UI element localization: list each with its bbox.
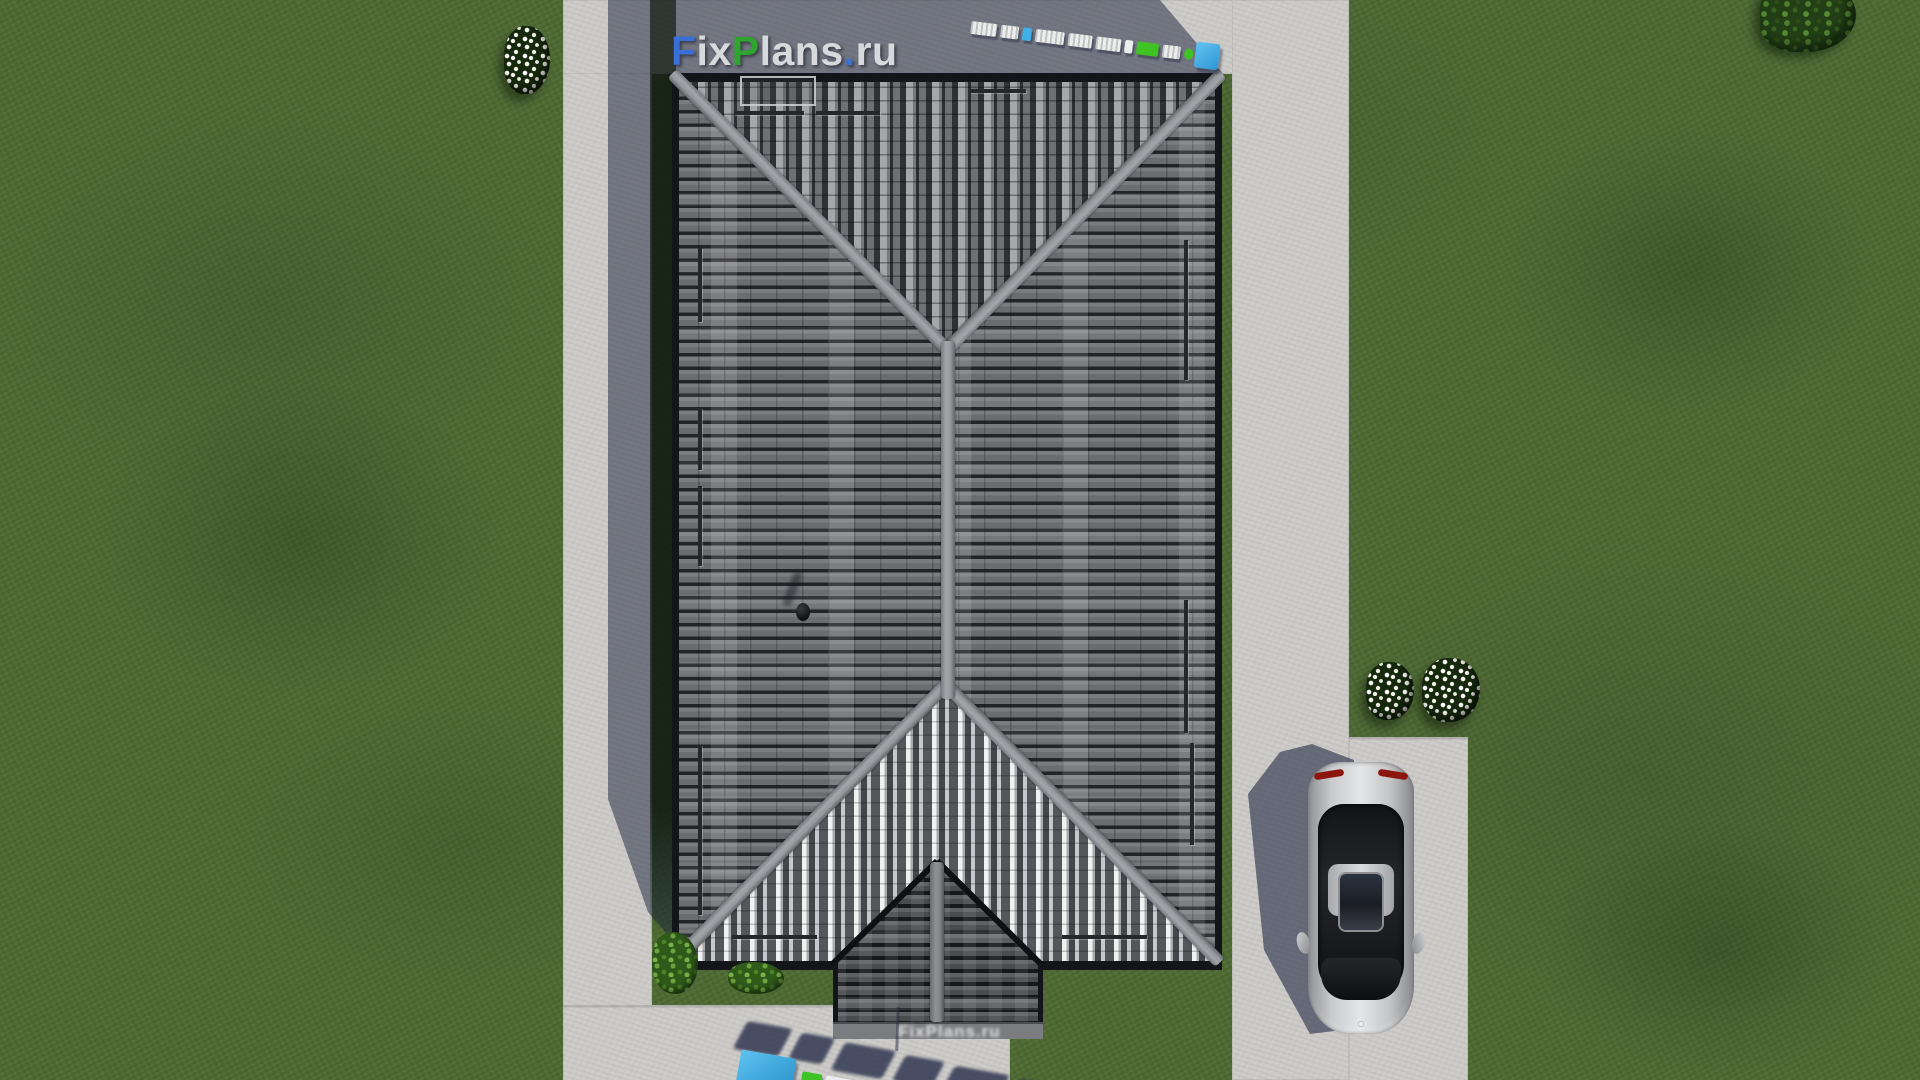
logo-block	[824, 1075, 856, 1080]
hood-emblem	[1358, 1021, 1364, 1027]
watermark-fixplans: FixPlans.ru	[671, 28, 898, 75]
car	[1308, 762, 1414, 1034]
snow-guard	[1062, 935, 1147, 939]
snow-guard	[1184, 240, 1188, 380]
shrub	[728, 962, 784, 994]
logo-block	[1035, 28, 1065, 44]
porch-roof	[833, 856, 1043, 1037]
watermark-smudge: FixPlans.ru	[898, 1022, 1001, 1042]
logo-cube-blue	[1193, 41, 1220, 70]
logo-block	[970, 20, 997, 36]
lawn-shade-patch	[1500, 120, 1880, 420]
logo-block-blue	[1021, 27, 1032, 41]
logo-block	[1096, 36, 1122, 52]
porch-eave-side	[833, 963, 838, 1023]
car-sunroof	[1340, 874, 1382, 930]
porch-ridge	[930, 862, 944, 1022]
eave-left	[672, 73, 679, 970]
logo-block	[1068, 32, 1094, 48]
logo-dot-green	[1184, 48, 1194, 60]
watermark-segment: F	[671, 28, 697, 74]
snow-guard	[816, 111, 880, 115]
roof-vent	[796, 603, 810, 621]
main-ridge	[941, 341, 955, 699]
snow-guard	[732, 935, 817, 939]
lawn-shade-patch	[1540, 820, 1900, 1080]
watermark-segment: P	[732, 28, 760, 74]
snow-guard	[1184, 600, 1188, 733]
house-roof	[672, 73, 1222, 970]
logo-block	[1162, 44, 1181, 59]
watermark-segment: lans	[760, 28, 844, 74]
eave-right	[1215, 73, 1222, 970]
porch-eave-side	[1038, 963, 1043, 1023]
snow-guard	[1190, 743, 1194, 845]
snow-guard	[698, 486, 702, 566]
shrub	[652, 932, 698, 994]
roof-hatch	[740, 76, 816, 106]
logo-block	[1124, 39, 1134, 53]
snow-guard	[698, 408, 702, 470]
snow-guard	[698, 248, 702, 322]
snow-guard	[698, 745, 702, 915]
watermark-segment: ru	[856, 28, 898, 74]
logo-block-green	[1136, 41, 1160, 57]
snow-guard	[970, 89, 1026, 93]
logo-block-green	[801, 1071, 823, 1080]
logo-cube-blue	[736, 1049, 797, 1080]
logo-block	[1000, 24, 1019, 39]
watermark-segment: .	[844, 28, 856, 74]
snow-guard	[734, 111, 804, 115]
lawn-shade-patch	[90, 380, 510, 700]
car-windshield	[1321, 958, 1401, 1000]
watermark-segment: ix	[697, 28, 732, 74]
scene-render: FixPlans.ru FixPl	[0, 0, 1920, 1080]
